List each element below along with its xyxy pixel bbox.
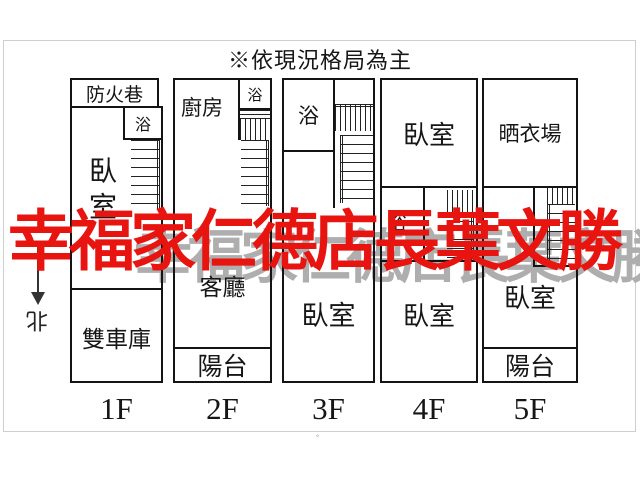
room-drying-area-5f: 晒衣場	[484, 80, 576, 188]
room-label: 浴	[135, 111, 151, 135]
room-label: 浴	[247, 84, 262, 105]
room-fire-lane-1f: 防火巷	[70, 78, 159, 108]
north-label: 北	[26, 306, 48, 338]
room-kitchen-2f: 廚房	[181, 92, 223, 122]
room-bath-3f: 浴	[284, 80, 333, 152]
floor-label-4f: 4F	[380, 391, 478, 427]
room-label: 防火巷	[86, 80, 143, 107]
stair-landing-icon	[238, 110, 270, 119]
footnote-mark: °	[316, 433, 319, 442]
floorplan-canvas: ※依現況格局為主 幸福家仁德店長葉文勝 北 防火巷 浴 臥室 雙車庫 1F 廚房…	[0, 0, 640, 480]
room-bedroom-bottom-4f: 臥室	[382, 296, 476, 333]
floor-label-5f: 5F	[482, 391, 578, 427]
watermark-red: 幸福家仁德店長葉文勝	[8, 188, 618, 284]
floor-label-2f: 2F	[173, 391, 272, 427]
floor-label-1f: 1F	[70, 391, 163, 427]
wall-divider	[72, 288, 161, 290]
room-bath-1f: 浴	[123, 108, 161, 140]
room-garage-1f: 雙車庫	[72, 320, 161, 354]
floor-label-3f: 3F	[282, 391, 375, 427]
north-arrow-icon	[31, 292, 45, 305]
room-balcony-5f: 陽台	[484, 347, 576, 381]
room-bedroom-3f: 臥室	[284, 294, 373, 333]
room-label: 陽台	[505, 347, 555, 383]
stair-hatch-icon	[335, 104, 373, 131]
disclaimer-title: ※依現況格局為主	[0, 43, 640, 75]
room-balcony-2f: 陽台	[175, 347, 270, 381]
room-label: 臥室	[403, 115, 455, 152]
room-label: 晒衣場	[499, 118, 562, 148]
stair-hatch-icon	[238, 119, 270, 140]
room-label: 浴	[298, 100, 319, 130]
room-bath-2f: 浴	[238, 80, 270, 110]
room-label: 陽台	[197, 347, 247, 383]
room-bedroom-top-4f: 臥室	[382, 80, 476, 188]
